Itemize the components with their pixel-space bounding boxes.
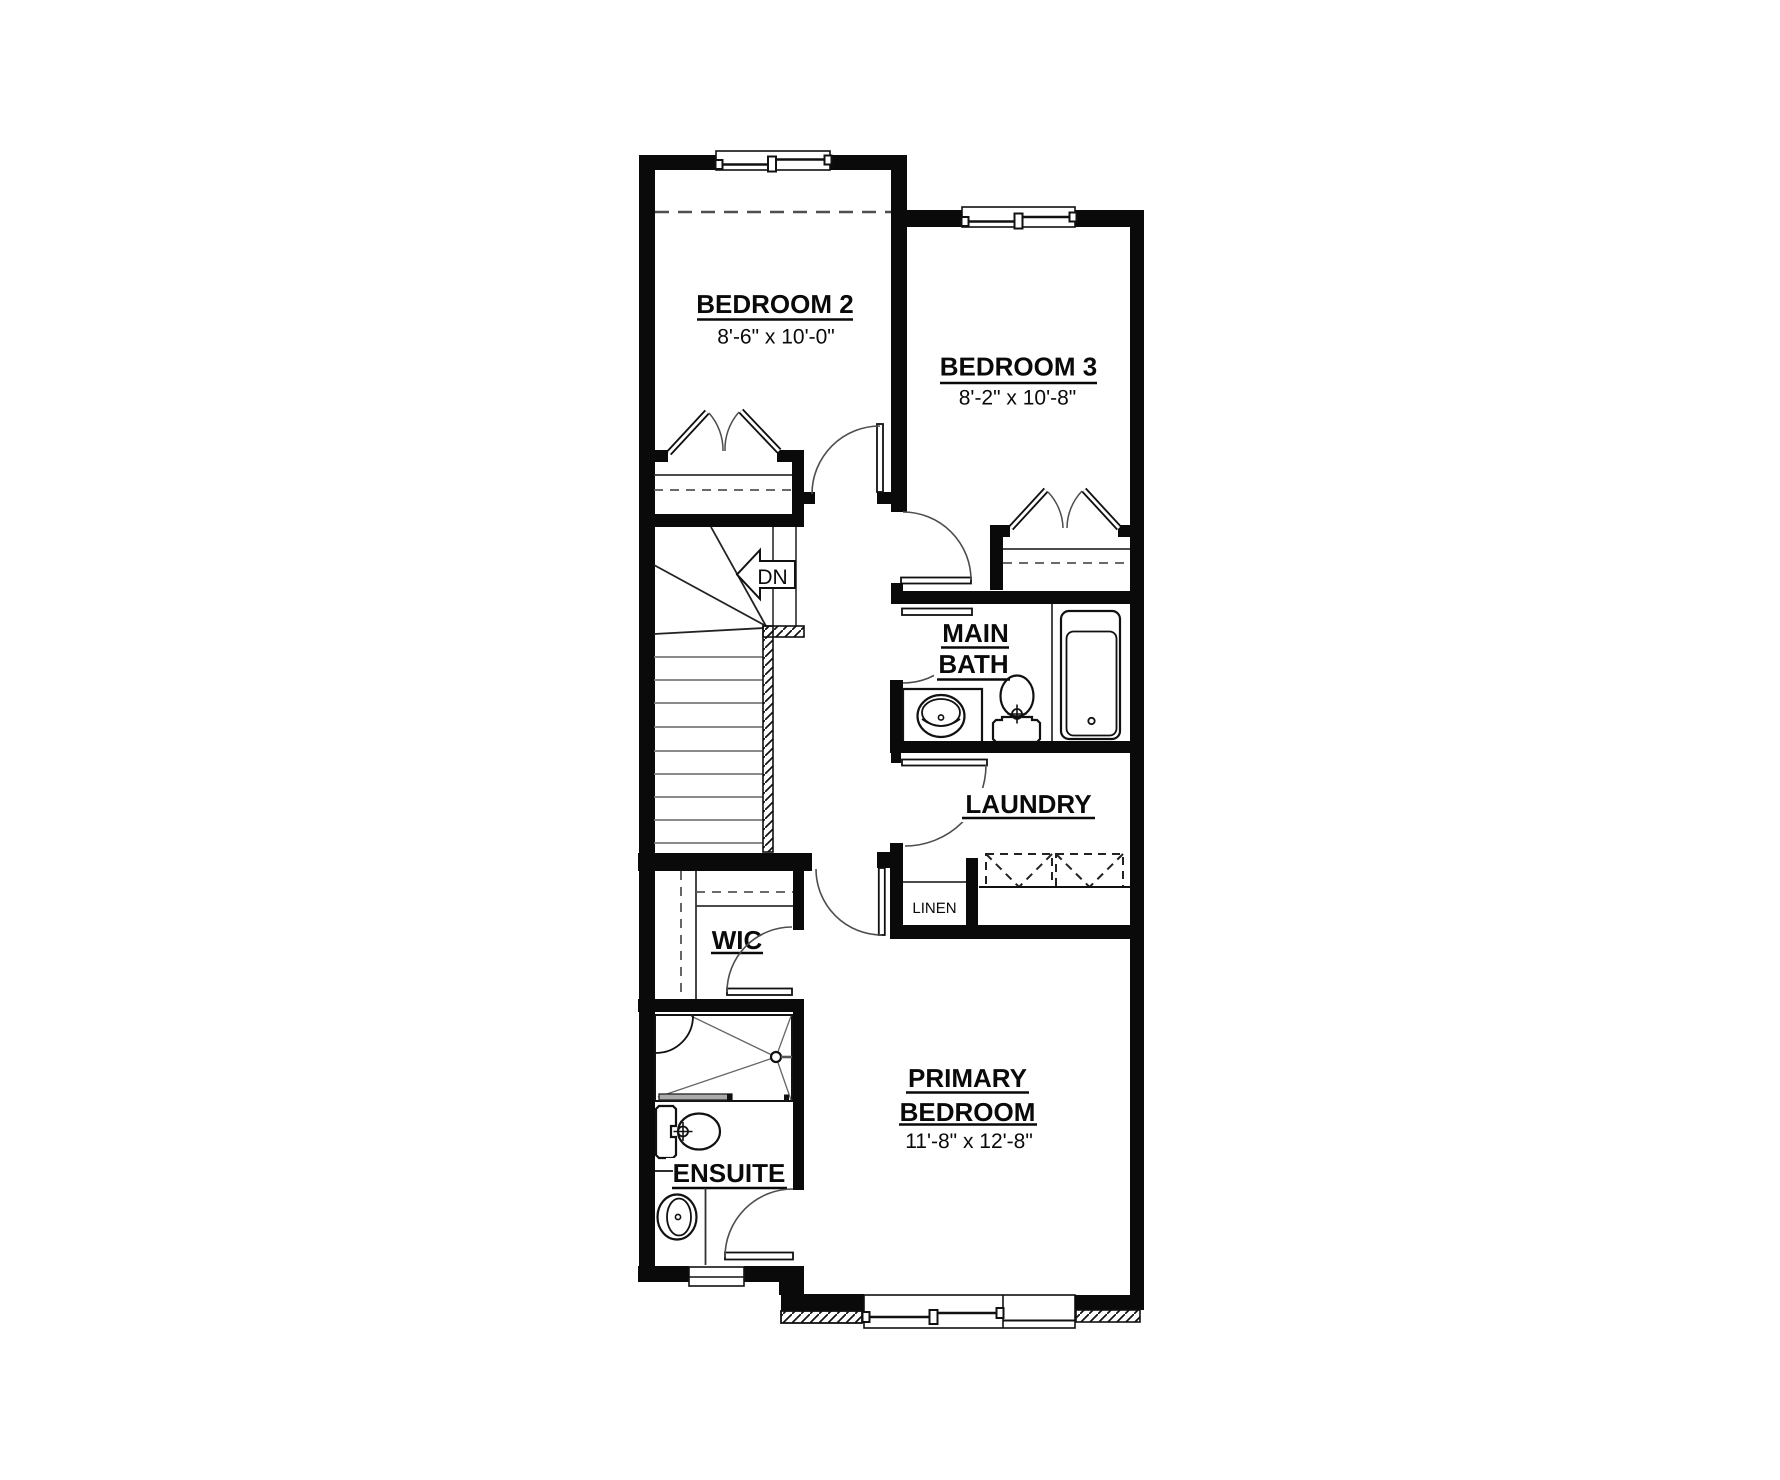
svg-text:BEDROOM 3: BEDROOM 3 <box>940 352 1097 382</box>
svg-text:WIC: WIC <box>712 925 763 955</box>
svg-text:BEDROOM 2: BEDROOM 2 <box>696 289 853 319</box>
svg-text:DN: DN <box>757 566 787 589</box>
svg-text:LAUNDRY: LAUNDRY <box>965 789 1091 819</box>
svg-text:8'-2" x 10'-8": 8'-2" x 10'-8" <box>959 387 1076 410</box>
svg-text:BATH: BATH <box>938 649 1008 679</box>
svg-text:11'-8" x 12'-8": 11'-8" x 12'-8" <box>905 1130 1033 1153</box>
svg-text:8'-6" x 10'-0": 8'-6" x 10'-0" <box>717 326 834 349</box>
svg-text:MAIN: MAIN <box>942 618 1008 648</box>
svg-text:LINEN: LINEN <box>912 900 956 917</box>
svg-text:PRIMARY: PRIMARY <box>908 1063 1027 1093</box>
svg-text:ENSUITE: ENSUITE <box>673 1158 786 1188</box>
svg-text:BEDROOM: BEDROOM <box>900 1097 1036 1127</box>
